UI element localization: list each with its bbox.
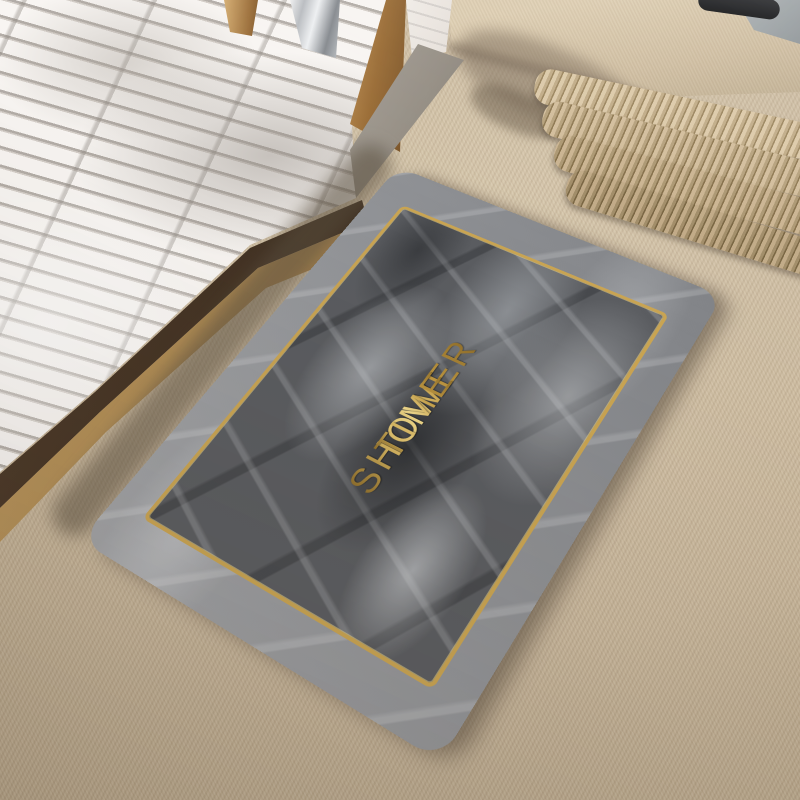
bathroom-scene: SHOWER TIME — [0, 0, 800, 800]
mat-text-line2: TIME — [366, 364, 463, 464]
